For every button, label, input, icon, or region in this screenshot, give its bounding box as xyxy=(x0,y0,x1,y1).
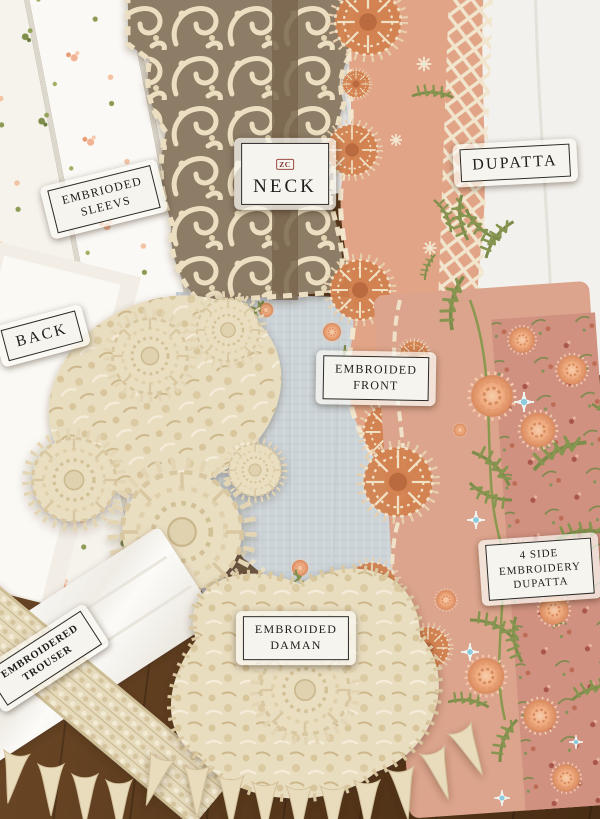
label-dupatta-text: DUPATTA xyxy=(472,150,559,176)
label-daman-line2: DAMAN xyxy=(255,638,337,654)
label-front-line2: FRONT xyxy=(335,377,417,394)
label-neck: ZC NECK xyxy=(234,138,336,210)
label-back-text: BACK xyxy=(14,319,71,352)
label-front: EMBROIDED FRONT xyxy=(315,350,436,406)
lace-leaf-fringe-bottom-left xyxy=(0,750,132,819)
snowflake-motif-icon xyxy=(390,134,402,146)
label-front-line1: EMBROIDED xyxy=(335,361,417,378)
snowflake-motif-icon xyxy=(417,57,431,71)
label-dupatta: DUPATTA xyxy=(452,138,578,188)
label-side-dupatta: 4 SIDE EMBROIDERY DUPATTA xyxy=(478,532,600,606)
brand-monogram-icon: ZC xyxy=(276,159,293,170)
label-neck-text: NECK xyxy=(253,174,317,199)
snowflake-motif-icon xyxy=(423,241,437,255)
fabric-photo-scene xyxy=(0,0,600,819)
label-daman-line1: EMBROIDED xyxy=(255,622,337,638)
label-daman: EMBROIDED DAMAN xyxy=(236,611,356,665)
flat-lay-photo: EMBRIODED SLEEVS ZC NECK DUPATTA BACK EM… xyxy=(0,0,600,819)
